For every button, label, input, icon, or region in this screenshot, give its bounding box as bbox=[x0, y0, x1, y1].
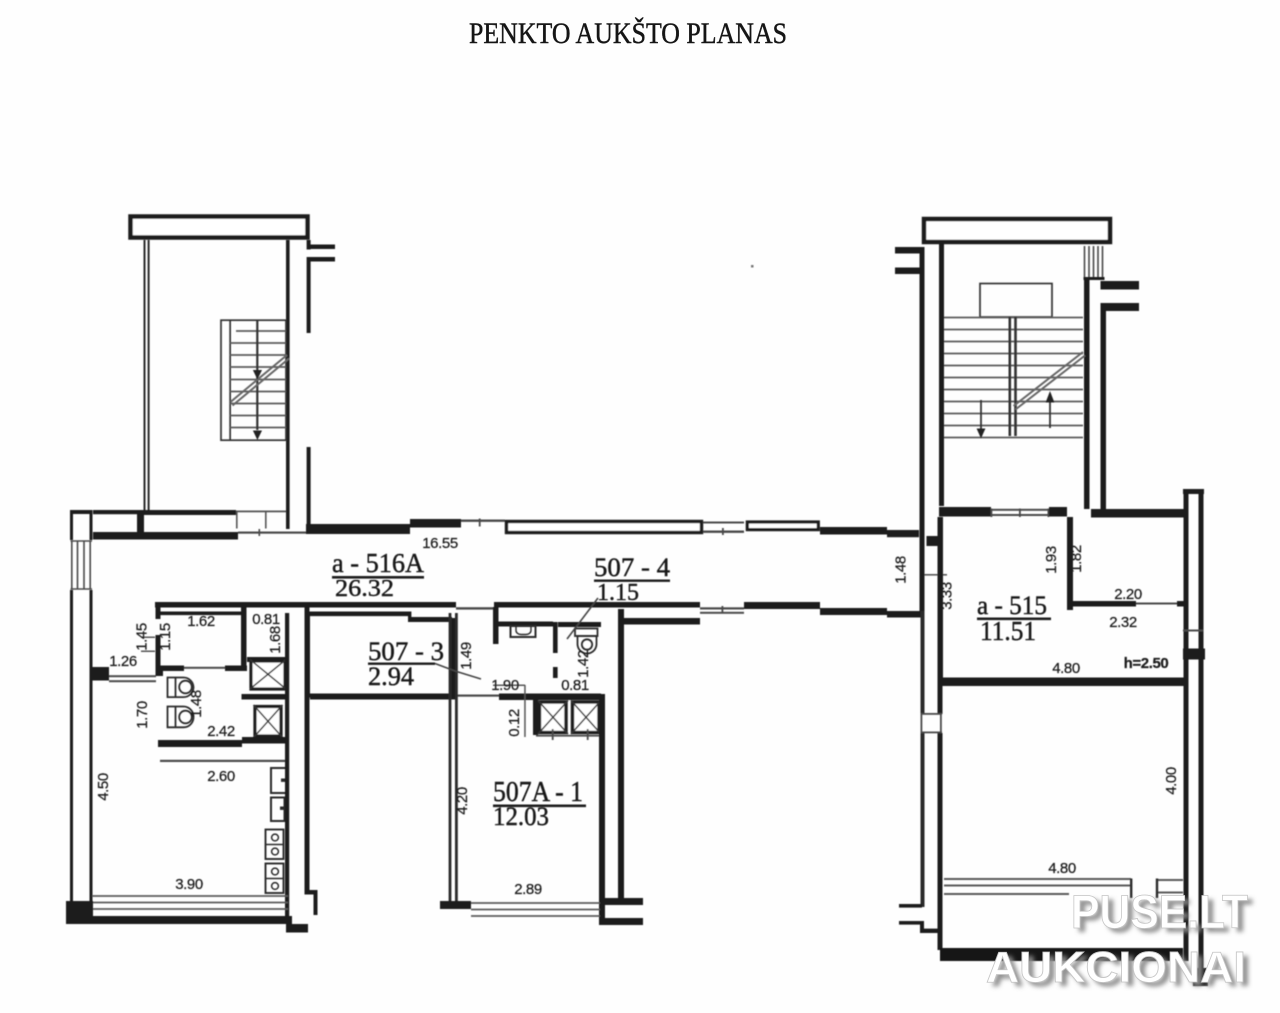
svg-text:1.62: 1.62 bbox=[187, 613, 215, 630]
svg-text:1.42: 1.42 bbox=[575, 650, 592, 678]
svg-text:12.03: 12.03 bbox=[493, 802, 549, 831]
svg-text:AUKCIONAI: AUKCIONAI bbox=[986, 943, 1246, 992]
svg-text:4.50: 4.50 bbox=[95, 773, 112, 801]
svg-text:2.94: 2.94 bbox=[368, 662, 414, 691]
svg-text:1.49: 1.49 bbox=[458, 642, 475, 670]
svg-text:2.42: 2.42 bbox=[207, 723, 235, 740]
svg-text:a - 516A: a - 516A bbox=[332, 548, 424, 578]
svg-text:1.48: 1.48 bbox=[893, 556, 910, 584]
svg-text:0.81: 0.81 bbox=[252, 611, 280, 628]
svg-text:2.60: 2.60 bbox=[207, 768, 235, 785]
svg-text:1.82: 1.82 bbox=[1068, 545, 1085, 573]
svg-text:1.15: 1.15 bbox=[157, 623, 174, 651]
svg-text:1.70: 1.70 bbox=[134, 701, 151, 729]
svg-text:1.15: 1.15 bbox=[597, 580, 639, 606]
svg-text:4.80: 4.80 bbox=[1052, 660, 1080, 677]
svg-text:1.26: 1.26 bbox=[109, 653, 137, 670]
svg-text:0.12: 0.12 bbox=[506, 709, 523, 737]
svg-text:PENKTO AUKŠTO PLANAS: PENKTO AUKŠTO PLANAS bbox=[469, 17, 787, 50]
svg-text:2.89: 2.89 bbox=[514, 881, 542, 898]
svg-text:11.51: 11.51 bbox=[980, 616, 1036, 646]
svg-text:3.33: 3.33 bbox=[939, 582, 956, 610]
svg-text:1.45: 1.45 bbox=[134, 623, 151, 651]
svg-text:0.81: 0.81 bbox=[561, 677, 589, 694]
svg-text:1.68: 1.68 bbox=[267, 626, 284, 654]
svg-text:3.90: 3.90 bbox=[175, 876, 203, 893]
svg-text:16.55: 16.55 bbox=[422, 535, 458, 552]
svg-text:507 - 4: 507 - 4 bbox=[594, 553, 670, 582]
svg-text:1.48: 1.48 bbox=[188, 690, 205, 718]
svg-text:2.32: 2.32 bbox=[1109, 614, 1137, 631]
svg-text:1.93: 1.93 bbox=[1043, 546, 1060, 574]
svg-text:4.20: 4.20 bbox=[454, 787, 471, 815]
svg-text:2.20: 2.20 bbox=[1114, 586, 1142, 603]
svg-text:h=2.50: h=2.50 bbox=[1124, 655, 1169, 672]
svg-text:1.90: 1.90 bbox=[491, 677, 519, 694]
svg-text:PUSE.LT: PUSE.LT bbox=[1071, 885, 1248, 938]
svg-text:4.00: 4.00 bbox=[1163, 767, 1180, 795]
svg-text:4.80: 4.80 bbox=[1048, 860, 1076, 877]
svg-text:26.32: 26.32 bbox=[335, 576, 394, 602]
